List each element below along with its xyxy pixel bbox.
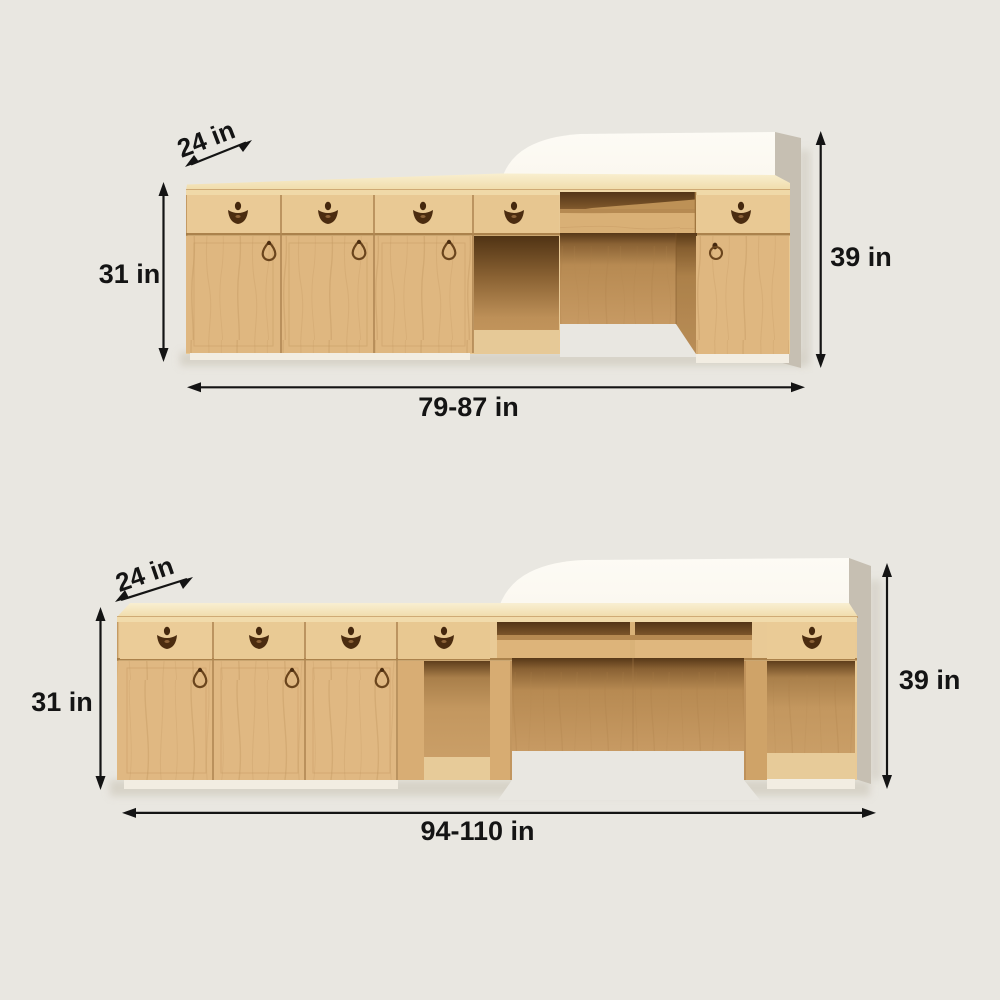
- svg-text:31 in: 31 in: [31, 687, 93, 717]
- svg-text:31 in: 31 in: [99, 259, 161, 289]
- svg-text:39 in: 39 in: [899, 665, 961, 695]
- svg-text:39 in: 39 in: [830, 242, 892, 272]
- svg-text:79-87 in: 79-87 in: [418, 392, 519, 422]
- svg-text:94-110 in: 94-110 in: [420, 816, 534, 846]
